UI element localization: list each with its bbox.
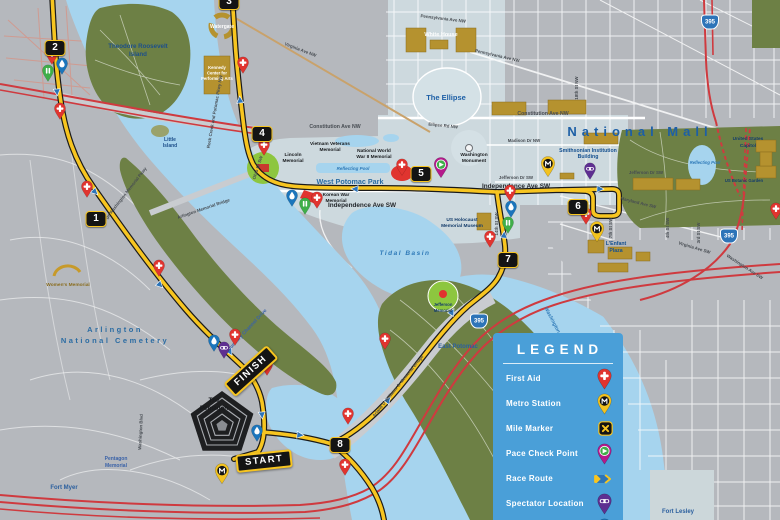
label-independence-e: Independence Ave SW (482, 183, 551, 190)
label-holocaust: US Holocaust (446, 217, 478, 223)
interstate-395-shield: 395 (470, 314, 488, 329)
label-jefferson-dr-e: Jefferson Dr SW (629, 170, 664, 175)
label-14th-st: 14th St SW (494, 212, 499, 236)
label-the-ellipse: The Ellipse (426, 93, 466, 102)
race-route-arrow-icon (593, 471, 613, 487)
label-korean-2: Memorial (325, 198, 346, 204)
first-aid-pin-icon (596, 368, 613, 390)
label-capitol-pool: Reflecting Pool (690, 160, 721, 165)
label-kennedy-center: Kennedy (208, 65, 226, 70)
washington-monument-dot (466, 145, 473, 152)
white-house-bldg (430, 40, 448, 49)
label-7th-st: 7th St SW (608, 217, 613, 238)
legend-panel: LEGEND First Aid Metro Station Mile Mark… (493, 333, 623, 520)
label-lincoln-2: Memorial (282, 158, 303, 164)
label-capitol: United States (733, 136, 764, 142)
label-ww2: National World (357, 148, 391, 154)
capitol-dome (760, 152, 772, 166)
pace-check-pin-icon (596, 443, 613, 465)
legend-title: LEGEND (493, 333, 623, 357)
race-course-map: Theodore Roosevelt Island Little Island … (0, 0, 780, 520)
label-constitution-e: Constitution Ave NW (517, 111, 568, 117)
label-west-potomac-park: West Potomac Park (317, 177, 384, 186)
american-indian-museum (676, 179, 700, 190)
interstate-395-shield: 395 (701, 15, 719, 30)
lenfant-bldg-3 (636, 252, 650, 261)
legend-item-race-route: Race Route (493, 466, 623, 491)
interstate-395-shield: 395 (720, 229, 738, 244)
label-vietnam-2: Memorial (319, 147, 340, 153)
label-4th-st: 4th St SW (665, 217, 670, 238)
metro-station-pin-icon (596, 393, 613, 415)
legend-label: First Aid (506, 374, 541, 383)
label-fort-lesley: Fort Lesley (662, 509, 695, 515)
legend-label: Mile Marker (506, 424, 553, 433)
mile-marker-1: 1 (86, 211, 107, 227)
label-vietnam: Vietnam Veterans (310, 141, 350, 147)
mile-marker-3: 3 (219, 0, 240, 10)
label-roosevelt-island-2: Island (129, 51, 147, 58)
legend-item-spectator: Spectator Location (493, 491, 623, 516)
label-madison-dr: Madison Dr NW (508, 138, 541, 143)
legend-label: Pace Check Point (506, 449, 578, 458)
legend-label: Metro Station (506, 399, 561, 408)
lenfant-bldg-4 (598, 263, 628, 272)
treasury (456, 28, 476, 52)
label-jefferson-memorial-2: Memorial (434, 308, 452, 313)
lenfant-bldg-1 (588, 240, 604, 253)
label-arlington-cemetery-2: National Cemetery (61, 336, 169, 345)
legend-item-mile-marker: Mile Marker (493, 416, 623, 441)
label-white-house: White House (424, 32, 457, 38)
label-holocaust-2: Memorial Museum (441, 223, 483, 229)
label-lincoln: Lincoln (284, 152, 301, 158)
mile-marker-8: 8 (330, 437, 351, 453)
legend-divider (503, 363, 613, 364)
legend-item-metro: Metro Station (493, 391, 623, 416)
label-reflecting-pool: Reflecting Pool (337, 166, 371, 171)
label-lenfant-2: Plaza (609, 248, 622, 254)
label-little-island-2: Island (163, 143, 177, 149)
green-ne-corner (752, 0, 780, 48)
little-island (151, 125, 169, 137)
legend-item-first-aid: First Aid (493, 366, 623, 391)
spectator-pin-icon (596, 493, 613, 515)
label-jefferson-memorial: Jefferson (434, 302, 453, 307)
mile-marker-7: 7 (498, 252, 519, 268)
label-18th-st: 18th St NW (574, 76, 579, 100)
map-canvas: Theodore Roosevelt Island Little Island … (0, 0, 780, 520)
legend-label: Spectator Location (506, 499, 584, 508)
mile-marker-6: 6 (568, 199, 589, 215)
label-3rd-st: 3rd St SW (696, 222, 701, 244)
label-washington-monument-2: Monument (462, 158, 487, 164)
label-roosevelt-island: Theodore Roosevelt (108, 43, 167, 50)
label-kennedy-center-2: Center for (207, 71, 227, 76)
label-pentagon-2: Pentagon (200, 405, 228, 412)
label-botanic: US Botanic Garden (725, 178, 764, 183)
label-tidal-basin: Tidal Basin (379, 250, 430, 257)
label-fort-myer: Fort Myer (50, 485, 78, 491)
label-constitution-w: Constitution Ave NW (309, 124, 360, 130)
legend-item-pace-check: Pace Check Point (493, 441, 623, 466)
mile-marker-4: 4 (252, 126, 273, 142)
label-pentagon-memorial: Pentagon (105, 456, 128, 462)
label-east-potomac: East Potomac (438, 344, 478, 350)
label-washington-monument: Washington (460, 152, 487, 158)
mile-marker-2: 2 (45, 40, 66, 56)
label-jefferson-dr-w: Jefferson Dr SW (499, 175, 534, 180)
label-lenfant: L'Enfant (606, 241, 627, 247)
label-smithsonian-2: Building (578, 154, 599, 160)
label-capitol-2: Capitol (740, 143, 756, 149)
legend-label: Race Route (506, 474, 553, 483)
mile-marker-5: 5 (411, 166, 432, 182)
mile-marker-icon (598, 421, 613, 436)
label-national-mall: National Mall (567, 124, 712, 139)
capitol-s (756, 166, 776, 178)
label-womens-memorial: Women's Memorial (46, 282, 89, 288)
eeob (406, 28, 426, 52)
label-arlington-cemetery: Arlington (87, 325, 143, 334)
label-pentagon: The (208, 397, 220, 404)
label-ww2-2: War II Memorial (356, 154, 391, 160)
label-pentagon-memorial-2: Memorial (105, 463, 128, 469)
label-korean: Korean War (323, 192, 350, 198)
legend-item-water-station: Water Station (493, 516, 623, 520)
air-space-museum (633, 178, 673, 190)
label-watergate: Watergate (210, 24, 234, 30)
